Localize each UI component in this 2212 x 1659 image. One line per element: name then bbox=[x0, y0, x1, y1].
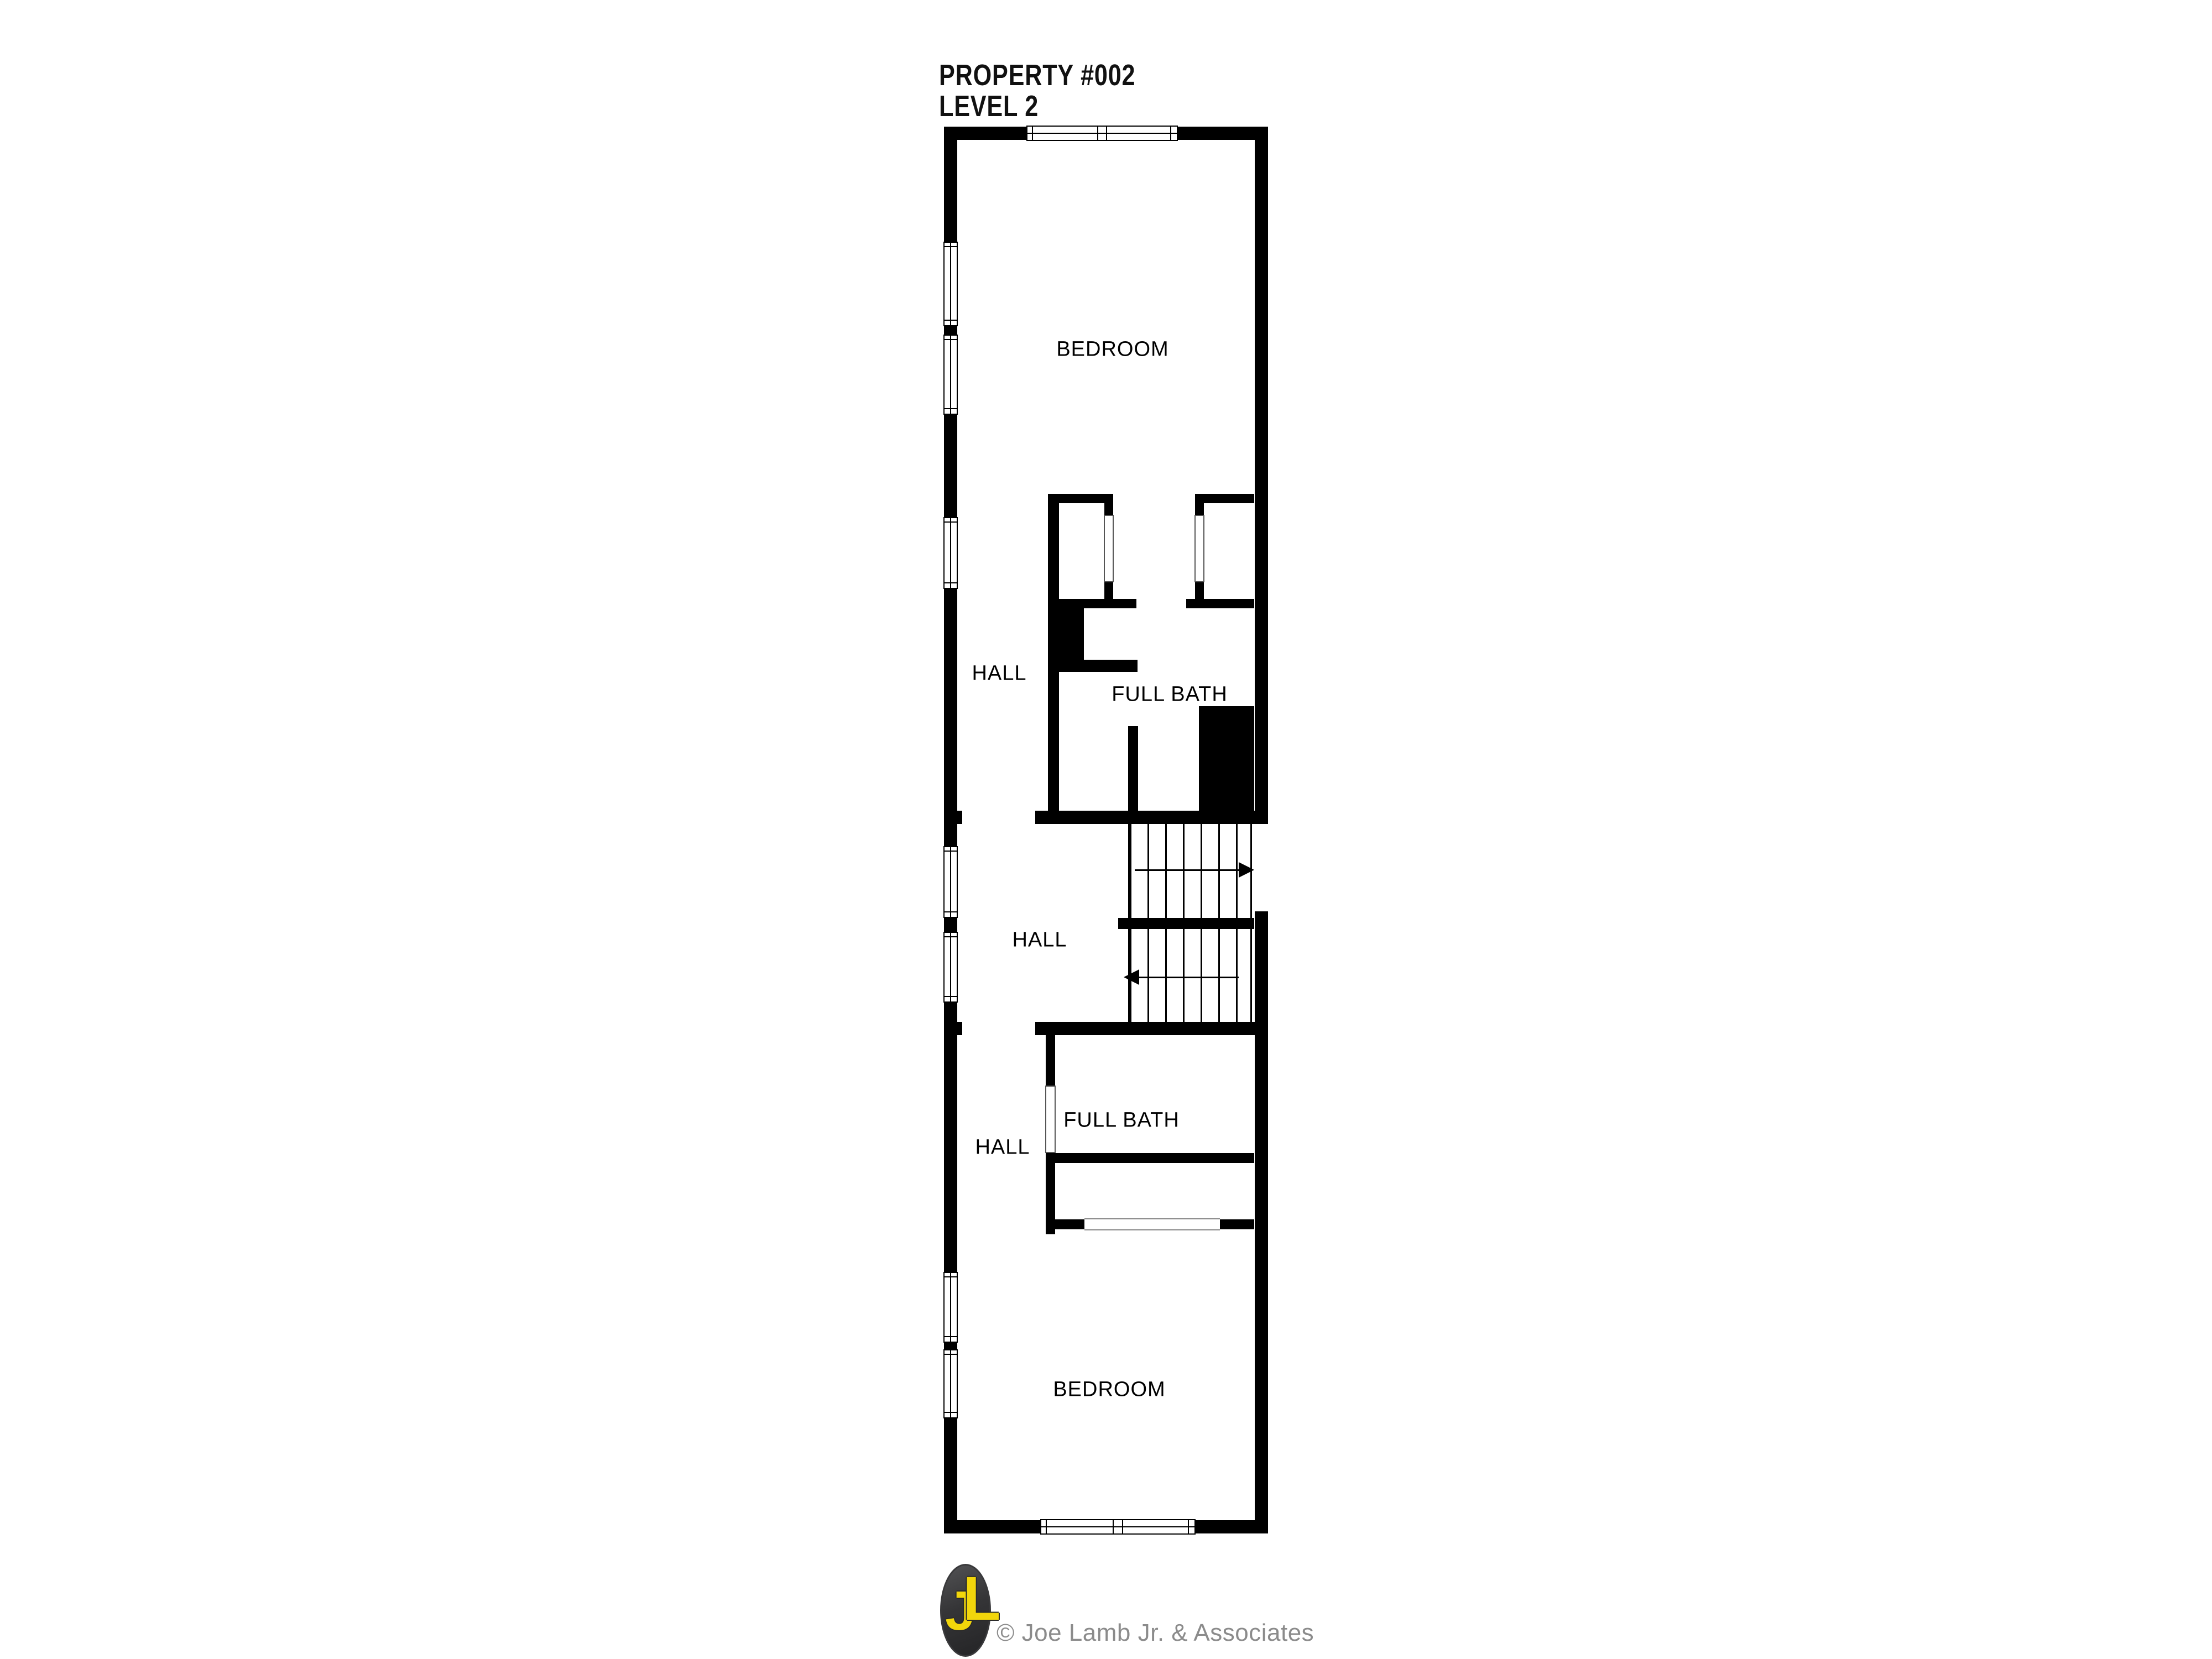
room-label-bedroom-bottom: BEDROOM bbox=[1053, 1378, 1165, 1402]
logo-letter-l: L bbox=[963, 1568, 1000, 1630]
bath-upper-door-opening bbox=[1135, 599, 1187, 608]
closet-right-door bbox=[1194, 515, 1204, 582]
company-logo-icon: J L bbox=[940, 1564, 991, 1657]
middle-hall-door-opening bbox=[961, 1022, 1036, 1035]
closet-right-top-wall bbox=[1195, 494, 1254, 503]
plan-title: PROPERTY #002LEVEL 2 bbox=[939, 60, 1135, 122]
room-label-full-bath-upper: FULL BATH bbox=[1112, 683, 1228, 707]
stair-arrow-right-line bbox=[1135, 869, 1241, 871]
room-label-hall-lower: HALL bbox=[975, 1136, 1030, 1160]
window-icon bbox=[1026, 126, 1178, 141]
room-label-hall-upper: HALL bbox=[972, 662, 1026, 686]
stairwell-wall-opening bbox=[1255, 824, 1268, 911]
copyright-credit: © Joe Lamb Jr. & Associates bbox=[997, 1619, 1314, 1647]
closet-lower-sliding-opening bbox=[1084, 1218, 1220, 1230]
window-icon bbox=[943, 517, 958, 589]
wall-chase-left bbox=[1048, 608, 1084, 661]
stairs-landing-wall bbox=[1118, 918, 1254, 929]
stair-arrow-left-icon bbox=[1124, 969, 1139, 985]
stair-arrow-right-icon bbox=[1239, 862, 1254, 878]
bath-lower-door bbox=[1045, 1086, 1056, 1153]
window-icon bbox=[1040, 1519, 1196, 1535]
stairs-upper-flight bbox=[1128, 824, 1252, 918]
stairs-lower-flight bbox=[1128, 929, 1252, 1022]
bath-upper-inner-wall bbox=[1059, 660, 1138, 672]
room-label-full-bath-lower: FULL BATH bbox=[1063, 1109, 1180, 1133]
plan-title-level: LEVEL 2 bbox=[939, 90, 1039, 123]
floor-plan-page: PROPERTY #002LEVEL 2 BEDROOM bbox=[0, 0, 2212, 1659]
window-icon bbox=[943, 1349, 958, 1418]
room-label-bedroom-top: BEDROOM bbox=[1056, 338, 1168, 362]
room-label-hall-middle: HALL bbox=[1012, 928, 1067, 952]
upper-hall-door-opening bbox=[961, 811, 1036, 824]
window-icon bbox=[943, 335, 958, 415]
window-icon bbox=[943, 846, 958, 918]
closet-left-top-wall bbox=[1048, 494, 1113, 503]
wall-chase-right bbox=[1199, 706, 1254, 811]
window-icon bbox=[943, 242, 958, 326]
bath-upper-stub-wall bbox=[1128, 726, 1138, 812]
bath-lower-bottom-wall bbox=[1046, 1153, 1254, 1163]
plan-title-property: PROPERTY #002 bbox=[939, 59, 1135, 92]
window-icon bbox=[943, 1272, 958, 1343]
closet-left-door bbox=[1104, 515, 1114, 582]
window-icon bbox=[943, 932, 958, 1003]
stair-arrow-left-line bbox=[1139, 977, 1239, 978]
